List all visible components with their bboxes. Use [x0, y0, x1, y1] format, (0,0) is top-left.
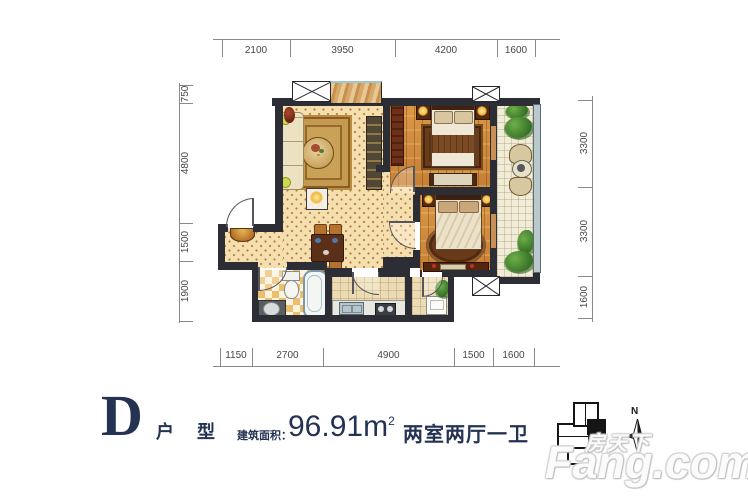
title-block: D 户 型 建筑面积： 96.91m2 两室两厅一卫 — [0, 388, 560, 458]
nightstand-lamp — [477, 106, 487, 116]
teapot — [517, 164, 525, 172]
dim-label: 3950 — [290, 45, 395, 57]
dim-spine — [592, 96, 593, 322]
wall — [490, 98, 497, 277]
burners — [378, 306, 384, 312]
floorplan-page: 2100 3950 4200 1600 1150 2700 4900 1500 … — [0, 0, 748, 498]
dim-spine — [213, 366, 560, 367]
tick — [578, 187, 592, 188]
coffee-table — [302, 137, 334, 169]
bedroom1-door-leaf — [413, 166, 415, 192]
dim-label: 2100 — [222, 45, 290, 57]
area-number: 96.91m — [288, 410, 388, 443]
wall — [252, 315, 454, 322]
bedroom2-door-leaf — [389, 221, 415, 223]
balcony-door-bedroom1 — [490, 126, 497, 160]
washer-lid — [430, 300, 444, 310]
keyplan-block — [567, 447, 590, 465]
tick — [535, 39, 536, 57]
sink-bowl — [342, 305, 352, 313]
unit-type-label: 户 型 — [156, 418, 224, 444]
dim-label: 4200 — [395, 45, 497, 57]
unit-letter: D — [101, 388, 143, 444]
window-x-icon — [292, 81, 332, 102]
entry-door-arc — [226, 198, 254, 227]
dining-plates — [315, 238, 321, 243]
keyplan-unit-highlight — [587, 419, 606, 435]
dim-label: 3300 — [579, 123, 591, 163]
table-decor — [311, 144, 320, 152]
window-x-icon — [472, 276, 500, 296]
dim-label: 1500 — [454, 350, 493, 362]
bathroom-door-leaf — [258, 267, 260, 290]
area-value: 96.91m2 — [288, 410, 395, 444]
bay-window-sill — [330, 81, 382, 104]
kitchen-door-leaf — [352, 272, 354, 294]
tub-inner — [307, 275, 322, 312]
entry-door-leaf — [252, 198, 254, 226]
balcony-chair — [509, 177, 532, 196]
wall — [420, 270, 422, 277]
wall — [325, 268, 352, 277]
wall — [378, 268, 410, 277]
toilet — [284, 280, 299, 299]
pillow — [454, 111, 473, 124]
table-lamp — [310, 191, 323, 204]
compass-icon — [623, 419, 652, 453]
keyplan-line — [559, 436, 588, 437]
utility-door-leaf — [422, 277, 424, 296]
dim-label: 1150 — [220, 350, 252, 362]
wall — [413, 195, 420, 222]
keyplan-line — [585, 404, 586, 425]
dim-label: 4900 — [323, 350, 454, 362]
wall — [275, 98, 283, 232]
wall — [287, 262, 327, 270]
dim-label: 1500 — [180, 222, 192, 262]
wall — [415, 187, 497, 195]
bed-bench — [429, 173, 477, 186]
entry-mat — [230, 228, 255, 242]
pillow — [438, 201, 458, 213]
wall — [413, 250, 420, 262]
dim-label: 4800 — [180, 143, 192, 183]
area-label: 建筑面积： — [237, 427, 292, 443]
dim-label: 750 — [180, 74, 192, 114]
compass-north-label: N — [631, 406, 638, 417]
balcony-railing — [533, 104, 541, 273]
dim-label: 1600 — [497, 45, 535, 57]
dim-label: 1600 — [579, 277, 591, 317]
nightstand-lamp — [418, 106, 428, 116]
bedroom1-dresser — [391, 102, 404, 166]
wall — [448, 277, 454, 317]
tick — [179, 321, 193, 322]
tick — [534, 348, 535, 366]
dim-label: 1900 — [180, 271, 192, 311]
washer — [426, 296, 447, 315]
balcony-door-bedroom2 — [490, 214, 497, 248]
potted-plant-living — [284, 107, 295, 123]
bed-quilt — [436, 213, 481, 248]
wall — [383, 98, 390, 168]
dim-label: 2700 — [252, 350, 323, 362]
window-x-icon — [472, 86, 500, 102]
dim-label: 3300 — [579, 211, 591, 251]
pillow — [434, 111, 453, 124]
bed-1 — [431, 103, 475, 167]
tick — [578, 100, 592, 101]
sink-basin — [263, 302, 280, 316]
tick — [578, 318, 592, 319]
dresser-decor — [432, 264, 436, 268]
bed-quilt — [432, 135, 474, 153]
kitchen-sink — [339, 302, 364, 315]
dim-label: 1600 — [493, 350, 534, 362]
wall — [405, 277, 412, 315]
wall — [376, 165, 390, 172]
bed-2 — [435, 193, 482, 250]
wall — [253, 224, 283, 232]
layout-text: 两室两厅一卫 — [403, 418, 529, 447]
dim-spine — [213, 39, 560, 40]
tv-cabinet — [366, 116, 382, 190]
nightstand-lamp — [424, 195, 433, 204]
area-sup: 2 — [388, 414, 395, 428]
pillow — [459, 201, 479, 213]
sink-bowl — [352, 305, 362, 313]
